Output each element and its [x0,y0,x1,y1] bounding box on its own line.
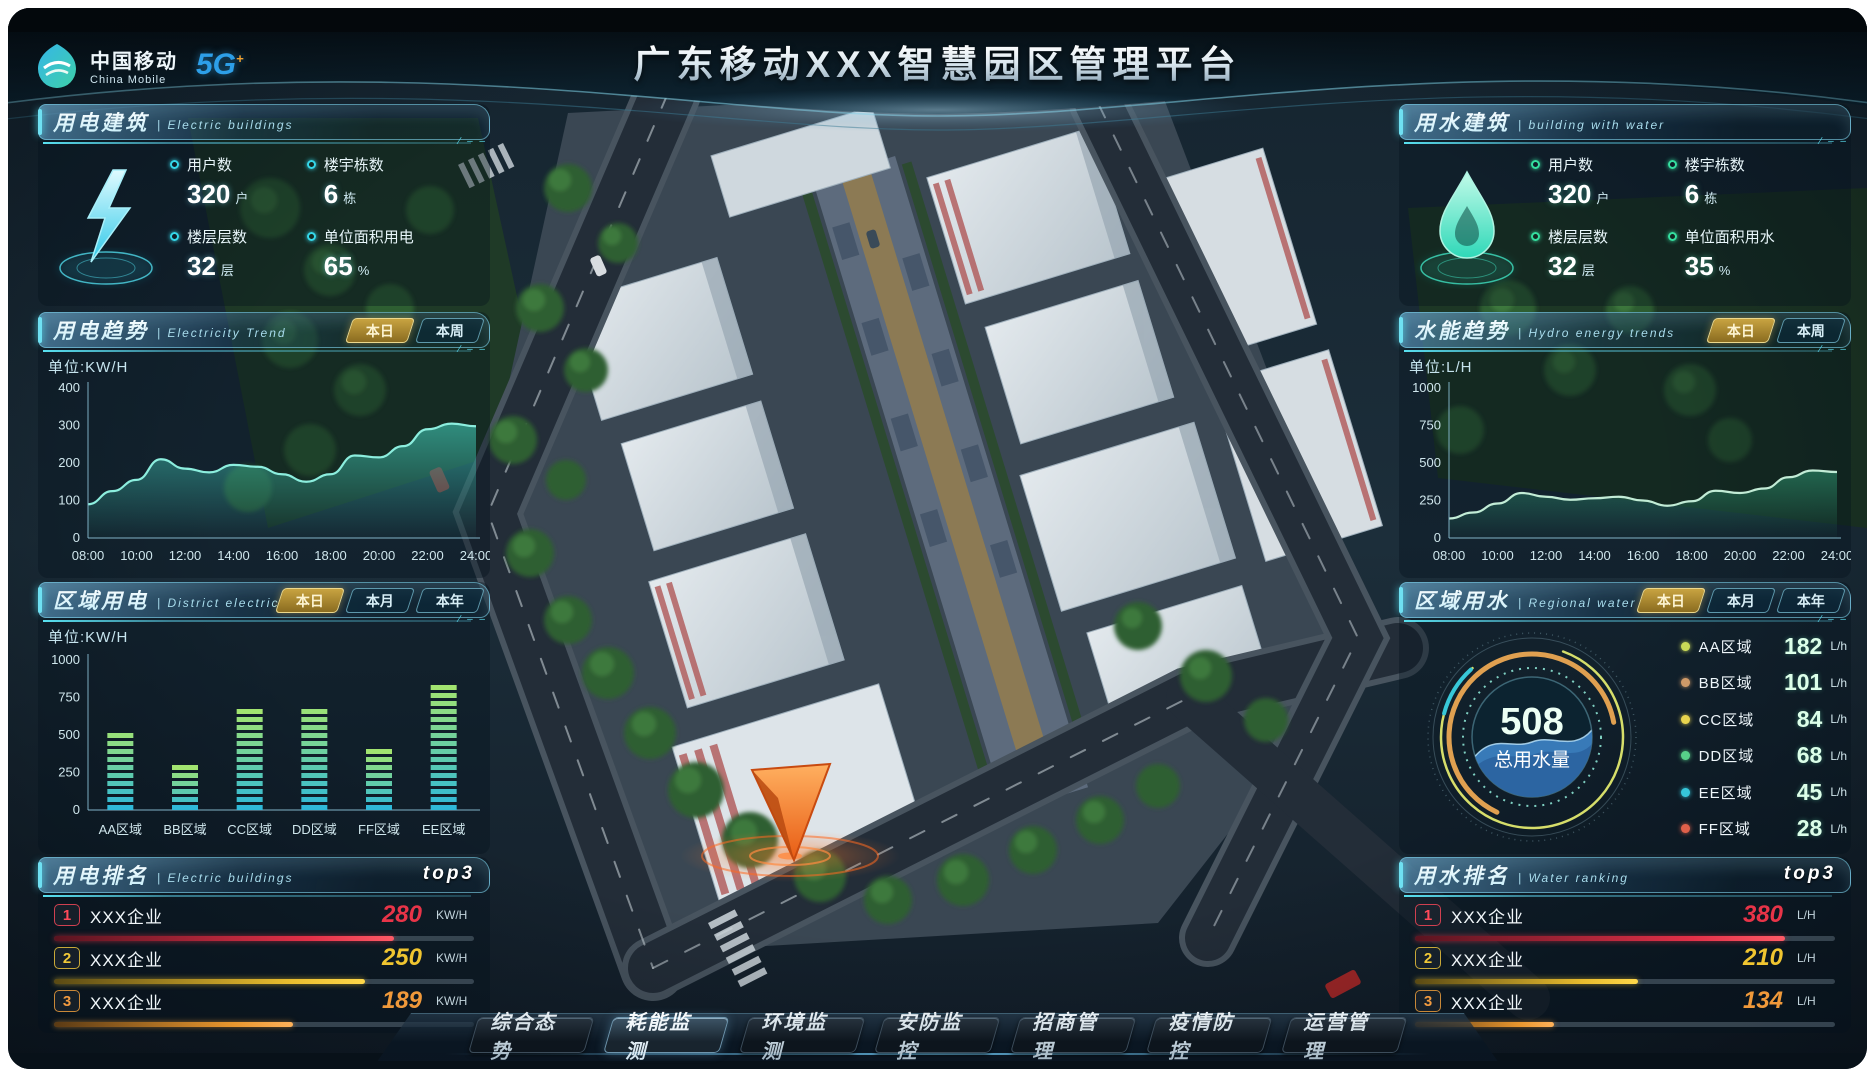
axis-tick-label: 22:00 [1772,548,1805,563]
legend-unit: L/h [1830,785,1847,799]
axis-tick-label: 750 [58,690,80,705]
axis-tick-label: 0 [73,802,80,817]
axis-tick-label: 250 [58,765,80,780]
stat-unit: 栋 [343,191,356,206]
panel-district-electricity: 区域用电 | District electricity ∕ ‒ ‒ 本日本月本年… [38,582,490,854]
nav-item-耗能监测[interactable]: 耗能监测 [603,1017,729,1053]
nav-item-运营管理[interactable]: 运营管理 [1281,1017,1407,1053]
axis-tick-label: 22:00 [411,548,444,563]
axis-tick-label: 24:00 [1821,548,1851,563]
rank-badge: 3 [1415,990,1441,1012]
stat-item: 楼宇栋数6栋 [307,154,486,210]
stat-unit: 户 [235,191,248,206]
stat-bullet-icon [1668,160,1677,169]
axis-tick-label: 1000 [51,652,80,667]
legend-name: FF区域 [1699,818,1773,839]
axis-tick-label: 300 [58,418,80,433]
rank-unit: KW/H [436,994,474,1008]
district-electricity-chart: 02505007501000AA区域BB区域CC区域DD区域FF区域EE区域 [38,644,490,848]
axis-tick-label: 750 [1419,418,1441,433]
stat-label: 楼层层数 [187,226,247,247]
bar-AA区域 [107,733,133,810]
legend-unit: L/h [1830,822,1847,836]
water-drop-icon [1411,156,1523,296]
stat-bullet-icon [1531,232,1540,241]
rank-bar-fill [1415,979,1638,984]
rank-value: 189 [382,987,422,1015]
axis-tick-label: 18:00 [1675,548,1708,563]
bar-FF区域 [366,749,392,810]
stat-label: 楼宇栋数 [1685,154,1745,175]
axis-tick-label: 400 [58,380,80,395]
rank-name: XXX企业 [1451,946,1733,971]
stat-unit: 层 [221,263,234,278]
nav-item-label: 安防监控 [897,1006,979,1064]
panel-electricity-trend: 用电趋势 | Electricity Trend ∕ ‒ ‒ 本日本周 单位:K… [38,312,490,578]
rank-name: XXX企业 [1451,989,1733,1014]
panel-header: 区域用水 | Regional water ∕ ‒ ‒ 本日本月本年 [1399,582,1851,618]
stat-item: 用户数320户 [1531,154,1664,210]
stat-label: 用户数 [187,154,232,175]
stat-value: 65 [324,251,353,281]
nav-item-label: 运营管理 [1304,1006,1386,1064]
legend-unit: L/h [1830,639,1847,653]
tab-label: 本日 [1727,321,1755,341]
legend-dot-icon [1681,678,1690,687]
rank-bar-track [1415,1022,1835,1027]
tab-本年[interactable]: 本年 [1776,588,1846,613]
rank-row: 1XXX企业380L/H [1415,901,1835,944]
electric-building-stats: 用户数320户楼宇栋数6栋楼层层数32层单位面积用电65% [170,154,486,282]
stat-bullet-icon [170,160,179,169]
legend-dot-icon [1681,751,1690,760]
panel-header: 用水建筑 | building with water ∕ ‒ ‒ [1399,104,1851,140]
rank-unit: L/H [1797,908,1835,922]
tab-本年[interactable]: 本年 [415,588,485,613]
nav-item-综合态势[interactable]: 综合态势 [468,1017,594,1053]
tab-label: 本年 [436,591,464,611]
rank-name: XXX企业 [90,989,372,1014]
nav-item-招商管理[interactable]: 招商管理 [1010,1017,1136,1053]
rank-unit: L/H [1797,951,1835,965]
panel-electric-ranking: 用电排名 | Electric buildings top3 1XXX企业280… [38,857,490,1033]
legend-item: EE区域45L/h [1681,774,1847,811]
stat-value: 32 [187,251,216,281]
rank-badge: 3 [54,990,80,1012]
axis-tick-label: 200 [58,455,80,470]
stat-unit: % [358,263,370,278]
rank-name: XXX企业 [90,946,372,971]
stat-unit: 层 [1582,263,1595,278]
electricity-trend-chart: 010020030040008:0010:0012:0014:0016:0018… [38,374,490,574]
rank-bar-fill [54,979,365,984]
axis-tick-label: 0 [73,530,80,545]
tab-label: 本月 [1727,591,1755,611]
stat-item: 楼层层数32层 [170,226,303,282]
stat-bullet-icon [307,160,316,169]
rank-unit: KW/H [436,951,474,965]
panel-title: 用电建筑 [53,107,149,137]
regional-water-legend: AA区域182L/hBB区域101L/hCC区域84L/hDD区域68L/hEE… [1681,628,1847,847]
panel-water-building: 用水建筑 | building with water ∕ ‒ ‒ 用户数320户… [1399,104,1851,306]
tab-label: 本周 [436,321,464,341]
stat-item: 楼层层数32层 [1531,226,1664,282]
legend-value: 68 [1773,742,1823,769]
tab-label: 本日 [1657,591,1685,611]
rank-bar-fill [54,1022,293,1027]
panel-header: 用水排名 | Water ranking top3 [1399,857,1851,893]
axis-tick-label: FF区域 [358,822,400,837]
bar-DD区域 [301,709,327,810]
rank-value: 280 [382,901,422,929]
panel-header: 水能趋势 | Hydro energy trends ∕ ‒ ‒ 本日本周 [1399,312,1851,348]
stat-value: 320 [1548,179,1591,209]
tab-label: 本月 [366,591,394,611]
stat-value: 35 [1685,251,1714,281]
axis-tick-label: 12:00 [1530,548,1563,563]
legend-item: BB区域101L/h [1681,665,1847,702]
stat-bullet-icon [1668,232,1677,241]
rank-bar-fill [1415,936,1785,941]
rank-value: 134 [1743,987,1783,1015]
tab-本日[interactable]: 本日 [345,318,415,343]
stat-item: 单位面积用电65% [307,226,486,282]
legend-name: CC区域 [1699,709,1773,730]
rank-name: XXX企业 [1451,903,1733,928]
rank-value: 250 [382,944,422,972]
axis-tick-label: BB区域 [163,822,206,837]
axis-tick-label: 12:00 [169,548,202,563]
axis-tick-label: 500 [1419,455,1441,470]
tab-本日[interactable]: 本日 [1636,588,1706,613]
axis-tick-label: CC区域 [227,822,272,837]
axis-tick-label: EE区域 [422,822,465,837]
stat-label: 单位面积用电 [324,226,414,247]
stat-value: 320 [187,179,230,209]
rank-unit: KW/H [436,908,474,922]
tab-本月[interactable]: 本月 [1706,588,1776,613]
legend-value: 182 [1773,633,1823,660]
axis-tick-label: 14:00 [217,548,250,563]
nav-item-label: 招商管理 [1032,1006,1114,1064]
legend-value: 28 [1773,815,1823,842]
top3-badge: top3 [1784,863,1836,885]
tab-label: 本日 [366,321,394,341]
page-title: 广东移动XXX智慧园区管理平台 [8,34,1867,88]
nav-item-安防监控[interactable]: 安防监控 [875,1017,1001,1053]
axis-tick-label: 16:00 [1627,548,1660,563]
panel-header: 区域用电 | District electricity ∕ ‒ ‒ 本日本月本年 [38,582,490,618]
rank-badge: 2 [54,947,80,969]
panel-header: 用电排名 | Electric buildings top3 [38,857,490,893]
stat-label: 用户数 [1548,154,1593,175]
hydro-tabs: 本日本周 [1710,318,1842,343]
tab-本日[interactable]: 本日 [1706,318,1776,343]
legend-item: FF区域28L/h [1681,811,1847,848]
stat-label: 楼层层数 [1548,226,1608,247]
legend-name: BB区域 [1699,672,1773,693]
axis-tick-label: 24:00 [460,548,490,563]
rank-bar-track [54,979,474,984]
bottom-nav: 综合态势耗能监测环境监测安防监控招商管理疫情防控运营管理 [473,1017,1403,1053]
stat-item: 楼宇栋数6栋 [1668,154,1847,210]
bar-BB区域 [172,765,198,810]
rank-unit: L/H [1797,994,1835,1008]
rank-name: XXX企业 [90,903,372,928]
rank-row: 2XXX企业210L/H [1415,944,1835,987]
panel-water-ranking: 用水排名 | Water ranking top3 1XXX企业380L/H2X… [1399,857,1851,1033]
rank-bar-fill [54,936,394,941]
gauge-value: 508 [1500,701,1563,743]
rank-row: 1XXX企业280KW/H [54,901,474,944]
trend-tabs: 本日本周 [349,318,481,343]
legend-value: 45 [1773,779,1823,806]
axis-tick-label: 1000 [1412,380,1441,395]
legend-dot-icon [1681,824,1690,833]
tab-label: 本年 [1797,591,1825,611]
dashboard-stage: 中国移动 China Mobile 5G+ 广东移动XXX智慧园区管理平台 用电… [8,8,1867,1069]
panel-hydro-trend: 水能趋势 | Hydro energy trends ∕ ‒ ‒ 本日本周 单位… [1399,312,1851,578]
axis-tick-label: 18:00 [314,548,347,563]
panel-electric-building: 用电建筑 | Electric buildings ∕ ‒ ‒ 用户数320户楼… [38,104,490,306]
stat-value: 32 [1548,251,1577,281]
lightning-icon [50,156,162,296]
axis-tick-label: 08:00 [72,548,105,563]
axis-tick-label: AA区域 [99,822,142,837]
axis-tick-label: 500 [58,727,80,742]
stat-value: 6 [324,179,338,209]
district-tabs: 本日本月本年 [279,588,481,613]
stat-unit: 栋 [1704,191,1717,206]
stat-unit: 户 [1596,191,1609,206]
axis-tick-label: 250 [1419,493,1441,508]
stat-item: 单位面积用水35% [1668,226,1847,282]
regional-water-tabs: 本日本月本年 [1640,588,1842,613]
nav-item-label: 耗能监测 [625,1006,707,1064]
total-water-gauge: 508 总用水量 [1423,628,1641,846]
rank-bar-track [54,936,474,941]
nav-item-label: 综合态势 [490,1006,572,1064]
legend-name: AA区域 [1699,636,1773,657]
legend-dot-icon [1681,788,1690,797]
tab-label: 本周 [1797,321,1825,341]
legend-name: DD区域 [1699,745,1773,766]
rank-badge: 1 [54,904,80,926]
rank-row: 2XXX企业250KW/H [54,944,474,987]
rank-bar-track [1415,936,1835,941]
water-building-stats: 用户数320户楼宇栋数6栋楼层层数32层单位面积用水35% [1531,154,1847,282]
nav-item-label: 环境监测 [761,1006,843,1064]
stat-label: 单位面积用水 [1685,226,1775,247]
rank-value: 210 [1743,944,1783,972]
panel-header: 用电建筑 | Electric buildings ∕ ‒ ‒ [38,104,490,140]
stat-item: 用户数320户 [170,154,303,210]
axis-tick-label: 100 [58,493,80,508]
legend-dot-icon [1681,642,1690,651]
stat-bullet-icon [1531,160,1540,169]
area-fill [88,424,476,538]
rank-value: 380 [1743,901,1783,929]
legend-unit: L/h [1830,712,1847,726]
tab-label: 本日 [296,591,324,611]
legend-item: CC区域84L/h [1681,701,1847,738]
stat-bullet-icon [307,232,316,241]
axis-tick-label: 20:00 [1724,548,1757,563]
rank-badge: 2 [1415,947,1441,969]
gauge-label: 总用水量 [1494,749,1570,771]
tab-本日[interactable]: 本日 [275,588,345,613]
bar-EE区域 [431,685,457,810]
stat-value: 6 [1685,179,1699,209]
bar-CC区域 [237,709,263,810]
panel-subtitle: | Electric buildings [157,118,294,132]
axis-tick-label: 0 [1434,530,1441,545]
axis-tick-label: 10:00 [1481,548,1514,563]
axis-tick-label: 10:00 [120,548,153,563]
hydro-trend-chart: 0250500750100008:0010:0012:0014:0016:001… [1399,374,1851,574]
top3-badge: top3 [423,863,475,885]
tab-本月[interactable]: 本月 [345,588,415,613]
axis-tick-label: 16:00 [266,548,299,563]
panel-header: 用电趋势 | Electricity Trend ∕ ‒ ‒ 本日本周 [38,312,490,348]
legend-item: AA区域182L/h [1681,628,1847,665]
panel-regional-water: 区域用水 | Regional water ∕ ‒ ‒ 本日本月本年 508 总… [1399,582,1851,854]
stat-bullet-icon [170,232,179,241]
legend-item: DD区域68L/h [1681,738,1847,775]
legend-value: 84 [1773,706,1823,733]
nav-item-label: 疫情防控 [1168,1006,1250,1064]
legend-name: EE区域 [1699,782,1773,803]
tab-本周[interactable]: 本周 [415,318,485,343]
nav-item-环境监测[interactable]: 环境监测 [739,1017,865,1053]
tab-本周[interactable]: 本周 [1776,318,1846,343]
legend-value: 101 [1773,669,1823,696]
water-ranking-list: 1XXX企业380L/H2XXX企业210L/H3XXX企业134L/H [1415,901,1835,1030]
rank-row: 3XXX企业134L/H [1415,987,1835,1030]
nav-item-疫情防控[interactable]: 疫情防控 [1146,1017,1272,1053]
electric-ranking-list: 1XXX企业280KW/H2XXX企业250KW/H3XXX企业189KW/H [54,901,474,1030]
stat-label: 楼宇栋数 [324,154,384,175]
stat-unit: % [1719,263,1731,278]
rank-bar-track [1415,979,1835,984]
legend-unit: L/h [1830,676,1847,690]
legend-unit: L/h [1830,749,1847,763]
axis-tick-label: 08:00 [1433,548,1466,563]
axis-tick-label: 14:00 [1578,548,1611,563]
rank-badge: 1 [1415,904,1441,926]
legend-dot-icon [1681,715,1690,724]
axis-tick-label: 20:00 [363,548,396,563]
axis-tick-label: DD区域 [292,822,337,837]
